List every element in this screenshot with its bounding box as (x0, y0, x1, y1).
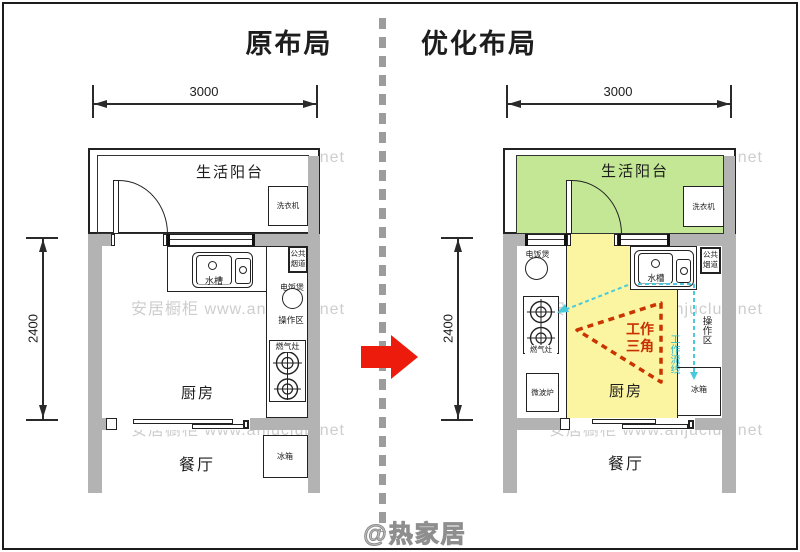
rice-cooker (282, 288, 303, 309)
arrow-right-icon (391, 335, 418, 379)
dim-arrow-icon (94, 100, 107, 108)
wall (255, 234, 320, 246)
wall (724, 156, 735, 234)
wall (88, 234, 112, 246)
sliding-door-stop (688, 420, 694, 429)
door-jamb (106, 418, 117, 430)
width-dimension: 3000 (92, 84, 316, 99)
door-opening (567, 234, 618, 246)
stove-label: 燃气灶 (271, 341, 304, 352)
window-line (528, 239, 564, 240)
window (525, 234, 567, 246)
width-dimension: 3000 (506, 84, 730, 99)
credit-watermark: @热家居 (350, 514, 480, 549)
sink-label: 水槽 (198, 274, 230, 287)
wall (503, 234, 525, 246)
wall (308, 156, 319, 234)
sliding-door-panel (622, 424, 688, 429)
window (167, 234, 255, 246)
dim-tick (730, 85, 732, 118)
window-end (167, 234, 170, 246)
door-jamb (560, 418, 570, 430)
window-line (621, 239, 667, 240)
dim-arrow-icon (508, 100, 521, 108)
sliding-door-stop (243, 420, 249, 429)
dim-arrow-icon (454, 405, 462, 418)
height-dimension: 2400 (26, 309, 41, 349)
right-plan-title: 优化布局 (404, 22, 554, 61)
washing-machine-label: 洗衣机 (685, 202, 722, 212)
work-triangle-label: 工作三角 (620, 321, 660, 355)
dim-arrow-icon (39, 405, 47, 418)
dim-line (42, 238, 44, 419)
work-flow-label: 工作流线 (668, 334, 678, 374)
balcony-label: 生活阳台 (183, 161, 277, 182)
window-line (170, 239, 252, 240)
window-end (525, 234, 528, 246)
dining-label: 餐厅 (165, 451, 229, 475)
arrow-right-icon (361, 346, 392, 368)
wall (308, 246, 320, 493)
balcony-label: 生活阳台 (595, 160, 675, 181)
divider-dashed-line (379, 18, 386, 532)
window-end (618, 234, 621, 246)
flue-label: 公共烟道 (701, 250, 720, 269)
height-dimension: 2400 (441, 309, 456, 349)
dim-line (93, 103, 317, 105)
drain-icon (239, 266, 247, 274)
prep-area-label: 操作区 (274, 314, 308, 326)
wall (503, 246, 517, 493)
dim-arrow-icon (454, 239, 462, 252)
dim-line (457, 238, 459, 419)
dining-label: 餐厅 (594, 450, 658, 474)
door-jamb (111, 234, 115, 246)
window (618, 234, 670, 246)
dim-line (507, 103, 731, 105)
wall (722, 246, 736, 493)
dim-tick (441, 419, 473, 421)
drain-icon (208, 261, 217, 270)
wall (670, 234, 736, 246)
wall (88, 246, 102, 493)
fridge-label: 冰箱 (270, 451, 300, 462)
left-plan-title: 原布局 (224, 22, 354, 61)
door-jamb (567, 234, 571, 246)
dim-arrow-icon (39, 239, 47, 252)
drain-icon (651, 259, 660, 268)
dim-arrow-icon (303, 100, 316, 108)
washing-machine-label: 洗衣机 (270, 201, 306, 211)
kitchen-label: 厨房 (594, 380, 658, 401)
kitchen-label: 厨房 (166, 382, 230, 403)
dim-arrow-icon (717, 100, 730, 108)
dim-tick (26, 419, 58, 421)
flue-label: 公共烟道 (289, 249, 307, 268)
comparison-diagram: 安居橱柜 www.anjuclub.net 安居橱柜 www.anjuclub.… (0, 0, 800, 552)
sliding-door-panel (192, 424, 248, 429)
dim-tick (316, 85, 318, 118)
